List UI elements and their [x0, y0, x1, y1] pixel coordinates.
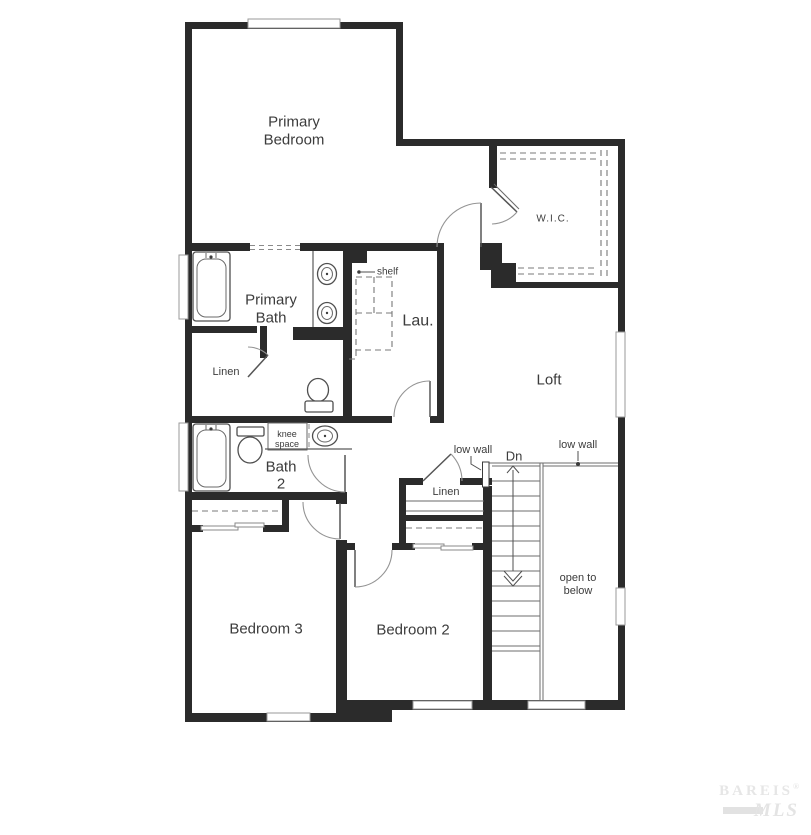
primary-bedroom-door — [437, 203, 481, 247]
bedroom3-door — [303, 502, 340, 539]
shelf-label: shelf — [377, 267, 398, 278]
bedroom2-door — [355, 550, 392, 587]
bedroom2-closet — [406, 528, 484, 550]
hall-linen-door — [423, 454, 462, 481]
low-wall-post — [483, 462, 490, 487]
down-label: Dn — [506, 449, 523, 464]
primary-bedroom-label-2: Bedroom — [264, 132, 325, 149]
open-below-label-2: below — [564, 585, 593, 597]
primary-bedroom-label-1: Primary — [268, 114, 320, 131]
laundry-label: Lau. — [402, 313, 433, 330]
staircase — [483, 462, 619, 700]
bath2-door — [308, 455, 345, 492]
laundry-door — [394, 381, 430, 417]
watermark-mls: MLS — [719, 801, 799, 820]
primary-toilet — [308, 379, 329, 402]
loft-label: Loft — [536, 372, 562, 389]
cased-opening — [250, 242, 300, 252]
shelf-marker — [357, 270, 361, 274]
bath2-fixtures — [193, 423, 352, 491]
mls-watermark: BAREIS® MLS — [719, 783, 799, 820]
wic-label: W.I.C. — [536, 214, 569, 225]
bath2-toilet — [237, 427, 264, 436]
watermark-brand: BAREIS® — [719, 783, 799, 799]
knee-space-label-1: knee — [277, 429, 297, 439]
watermark-mls-text: MLS — [754, 801, 799, 820]
wic-door — [491, 184, 519, 224]
bedroom3-label: Bedroom 3 — [229, 621, 302, 638]
low-wall-left-label: low wall — [454, 444, 493, 456]
laundry-appliances — [349, 270, 392, 359]
open-below-label-1: open to — [560, 572, 597, 584]
bath2-label-1: Bath — [266, 459, 297, 476]
primary-linen-label: Linen — [213, 366, 240, 378]
registered-mark: ® — [793, 782, 799, 791]
bedroom2-label: Bedroom 2 — [376, 622, 449, 639]
knee-space-label-2: space — [275, 439, 299, 449]
low-wall-right-label: low wall — [559, 439, 598, 451]
hall-linen-label: Linen — [433, 486, 460, 498]
hall-linen-closet — [406, 501, 484, 511]
primary-bath-label-2: Bath — [256, 310, 287, 327]
bath2-label-2: 2 — [277, 476, 285, 493]
primary-bath-label-1: Primary — [245, 292, 297, 309]
floor-plan-page: Primary Bedroom W.I.C. Primary Bath Line… — [0, 0, 811, 835]
floor-plan-drawing: Primary Bedroom W.I.C. Primary Bath Line… — [0, 0, 811, 835]
